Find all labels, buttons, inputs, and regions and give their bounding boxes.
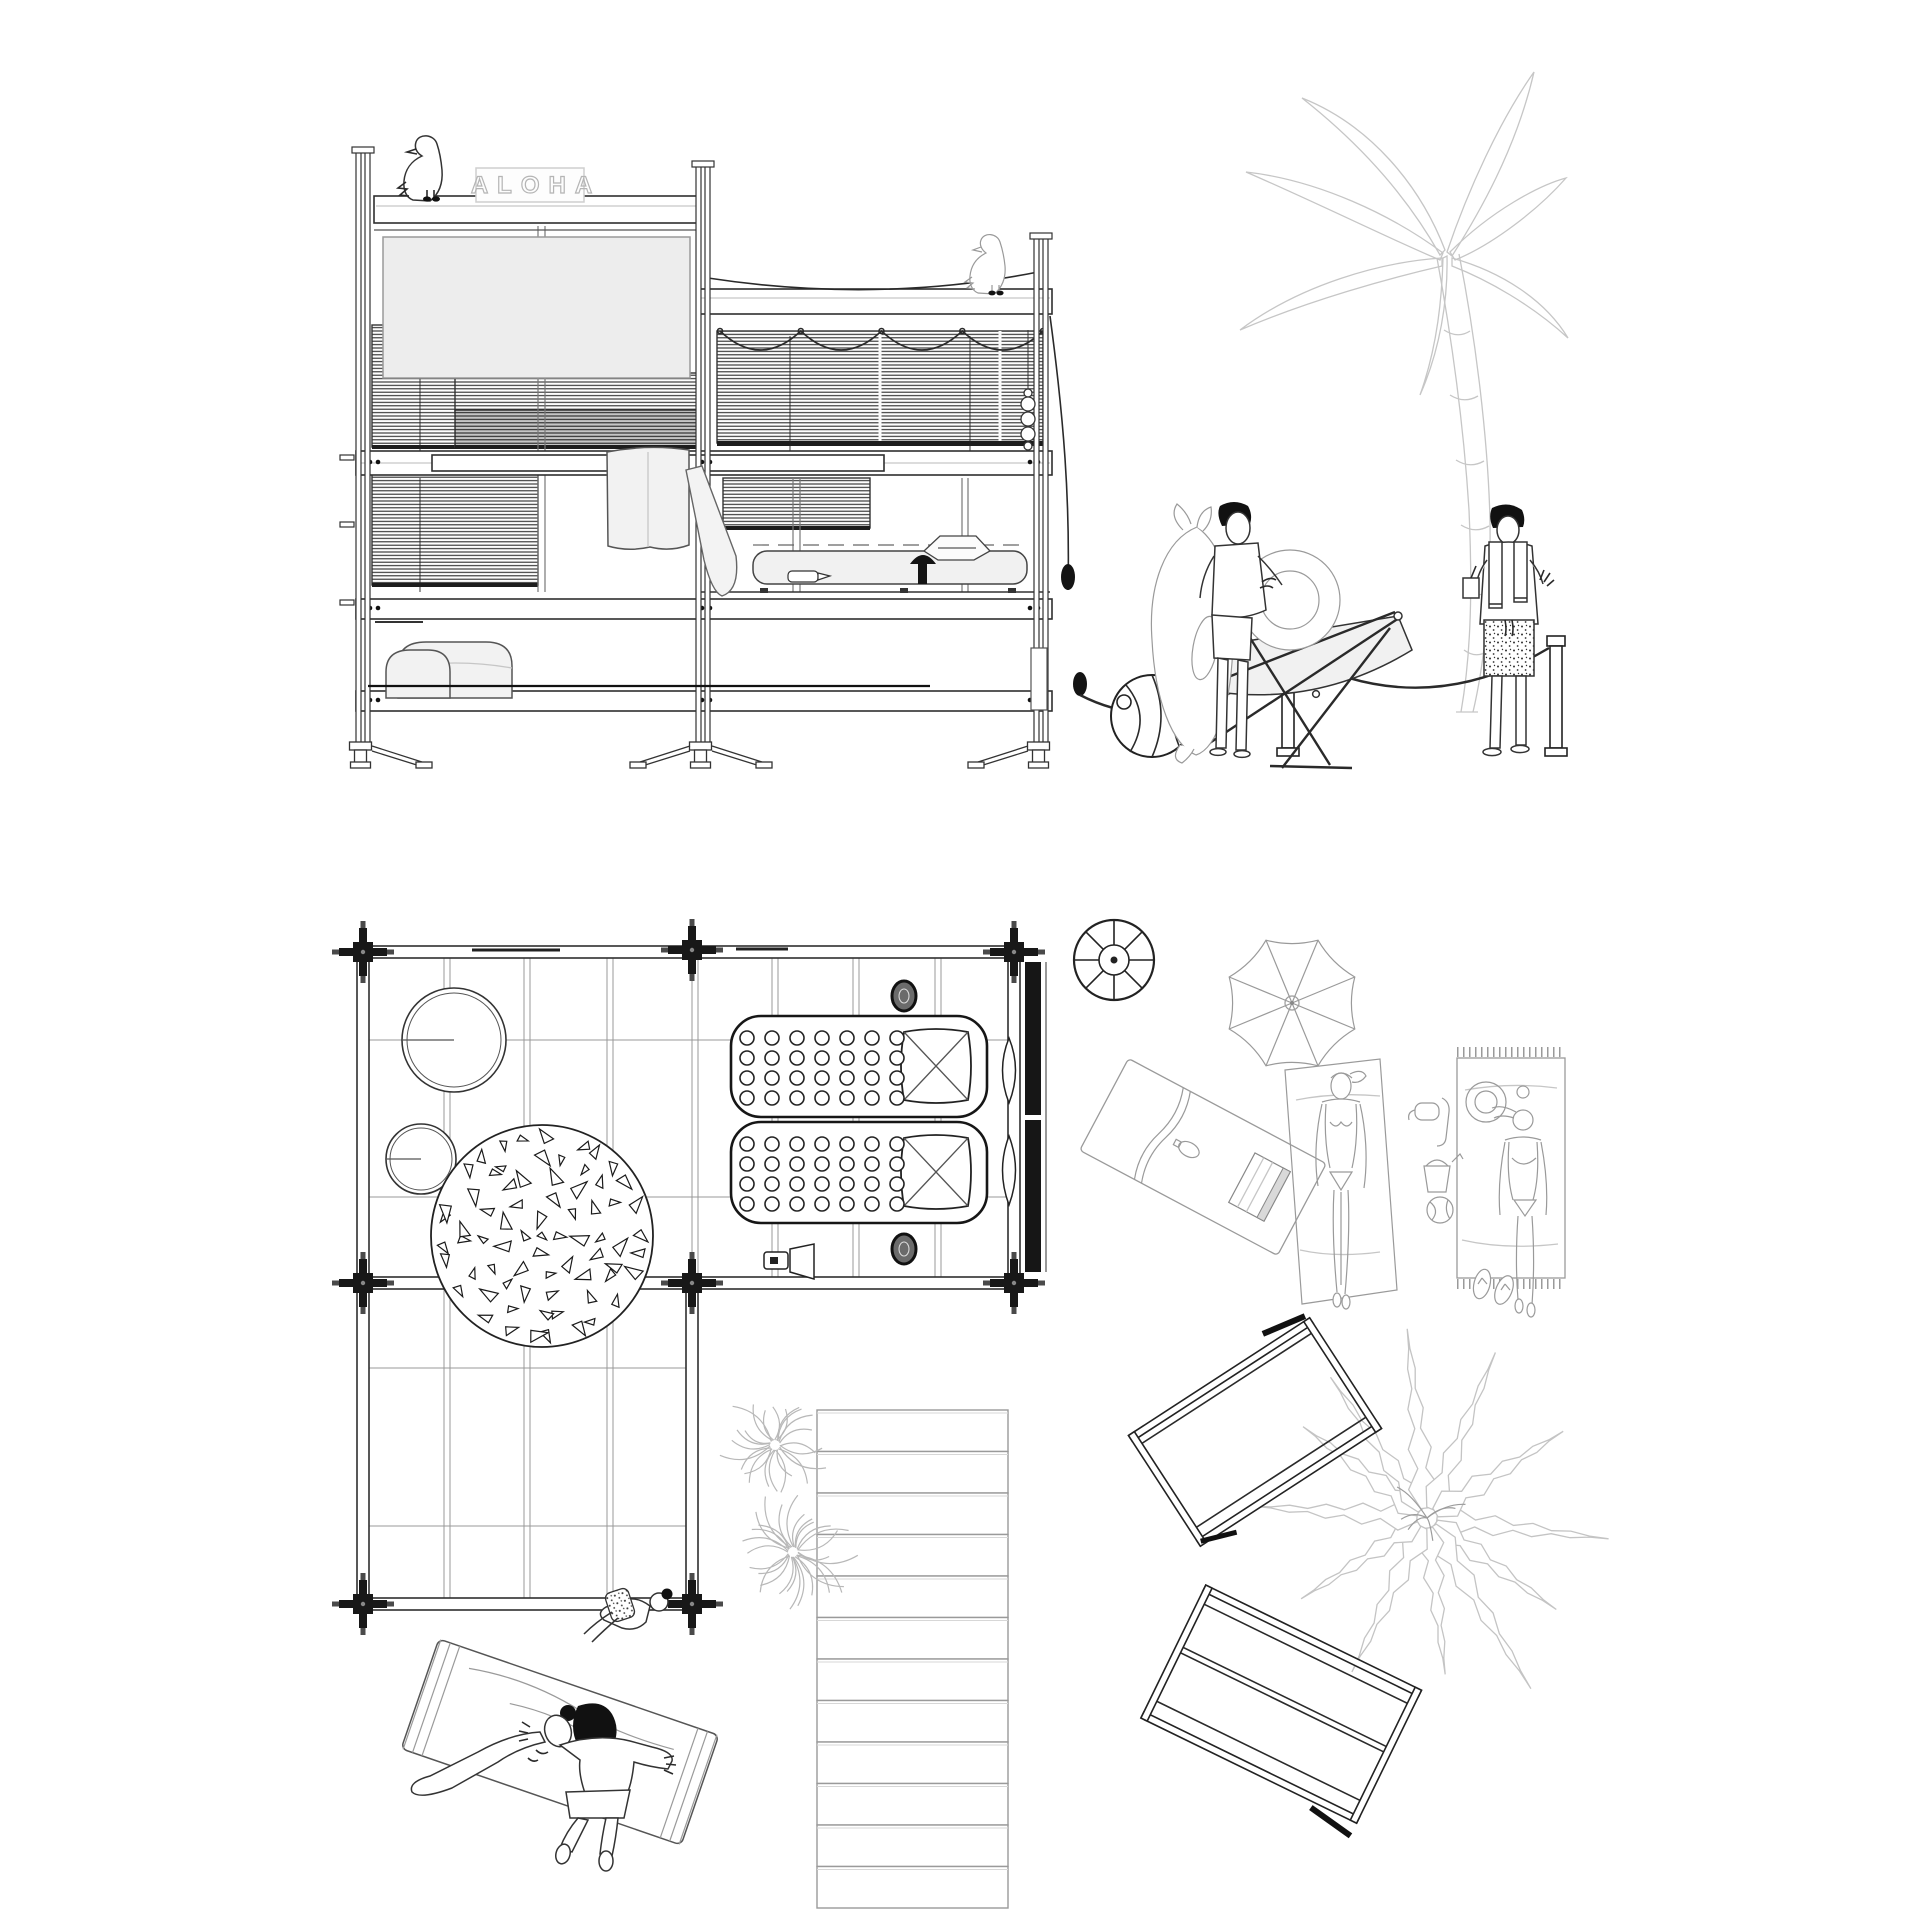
deck-speaker-icon <box>892 1234 916 1264</box>
patterned-rug <box>431 1125 653 1347</box>
deck-speaker-icon <box>892 981 916 1011</box>
snorkel-mask-icon <box>1409 1098 1450 1146</box>
bed <box>753 536 1027 584</box>
round-table-large <box>402 988 506 1092</box>
seagull-left-icon <box>398 136 442 202</box>
beach-towel-diagonal <box>1080 1059 1327 1256</box>
beach-plan-scene <box>1074 920 1609 1836</box>
man2-shorts <box>1484 620 1534 676</box>
segmented-ball-icon <box>1074 920 1154 1000</box>
architectural-drawing: ALOHA <box>0 0 1920 1920</box>
plan-view <box>332 919 1046 1908</box>
projection-screen <box>383 237 690 378</box>
man2-towel <box>1489 542 1502 608</box>
aloha-sign: ALOHA <box>471 168 601 202</box>
elevation-view: ALOHA <box>340 72 1568 768</box>
scaffold-feet <box>350 742 1050 768</box>
parasol-top-icon <box>1229 940 1355 1066</box>
aloha-sign-text: ALOHA <box>471 172 601 199</box>
double-lounger <box>401 1639 719 1871</box>
man-with-inflatables <box>1151 502 1340 763</box>
roller-blinds-upper-right <box>717 329 1046 453</box>
drawing-svg: ALOHA <box>0 0 1920 1920</box>
stairs <box>817 1410 1008 1908</box>
small-ball-icon <box>1427 1197 1453 1223</box>
sunbather-1 <box>1316 1071 1366 1309</box>
man1-shirt <box>1212 543 1266 618</box>
man-with-drink <box>1463 504 1554 755</box>
poufs <box>386 642 512 698</box>
person-lying-on-beam <box>584 1587 673 1642</box>
seagull-right-icon <box>965 235 1005 296</box>
